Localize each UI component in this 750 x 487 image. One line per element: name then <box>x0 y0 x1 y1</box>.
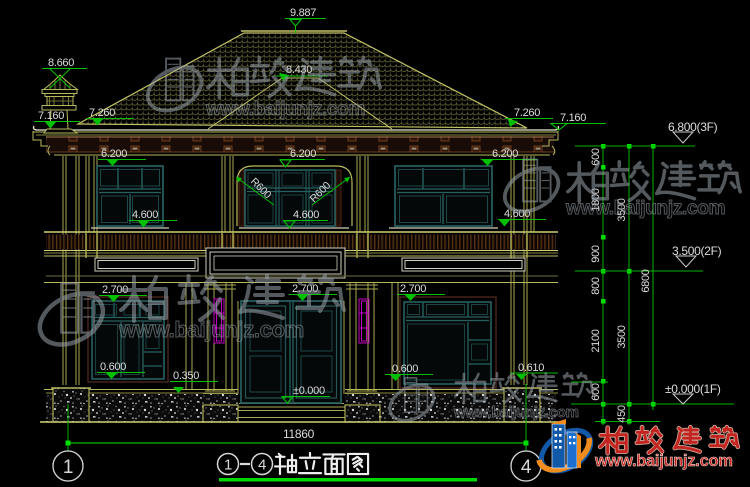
svg-text:2100: 2100 <box>590 329 602 352</box>
svg-text:1: 1 <box>224 457 232 474</box>
svg-text:0.610: 0.610 <box>518 362 544 374</box>
svg-text:6.200: 6.200 <box>290 148 316 160</box>
svg-text:9.887: 9.887 <box>290 7 316 19</box>
svg-text:800: 800 <box>590 277 602 295</box>
svg-text:6.200: 6.200 <box>492 148 518 160</box>
svg-text:±0.000: ±0.000 <box>293 385 325 397</box>
svg-text:4: 4 <box>258 457 266 474</box>
svg-text:0.350: 0.350 <box>173 370 199 382</box>
svg-text:0.600: 0.600 <box>100 361 126 373</box>
svg-text:7.160: 7.160 <box>38 110 64 122</box>
svg-text:4.600: 4.600 <box>293 209 319 221</box>
svg-text:7.160: 7.160 <box>560 112 586 124</box>
svg-text:7.260: 7.260 <box>514 107 540 119</box>
svg-text:2.700: 2.700 <box>400 283 426 295</box>
svg-text:1: 1 <box>63 457 73 478</box>
svg-text:4: 4 <box>521 457 532 478</box>
svg-text:11860: 11860 <box>283 427 315 441</box>
svg-text:0.600: 0.600 <box>392 363 418 375</box>
svg-text:www.baijunjz.com: www.baijunjz.com <box>205 99 365 120</box>
svg-text:900: 900 <box>590 245 602 263</box>
svg-text:4.600: 4.600 <box>132 209 158 221</box>
svg-text:3500: 3500 <box>616 325 628 348</box>
svg-text:www.baijunjz.com: www.baijunjz.com <box>118 317 304 342</box>
svg-text:www.baijunjz.com: www.baijunjz.com <box>565 198 725 219</box>
svg-text:www.baijunjz.com: www.baijunjz.com <box>594 452 733 470</box>
svg-text:450: 450 <box>616 405 628 423</box>
svg-text:8.660: 8.660 <box>48 57 74 69</box>
svg-text:7.260: 7.260 <box>89 107 115 119</box>
svg-text:www.baijunjz.com: www.baijunjz.com <box>453 404 579 421</box>
svg-text:6.200: 6.200 <box>101 148 127 160</box>
svg-text:6800: 6800 <box>640 269 652 292</box>
